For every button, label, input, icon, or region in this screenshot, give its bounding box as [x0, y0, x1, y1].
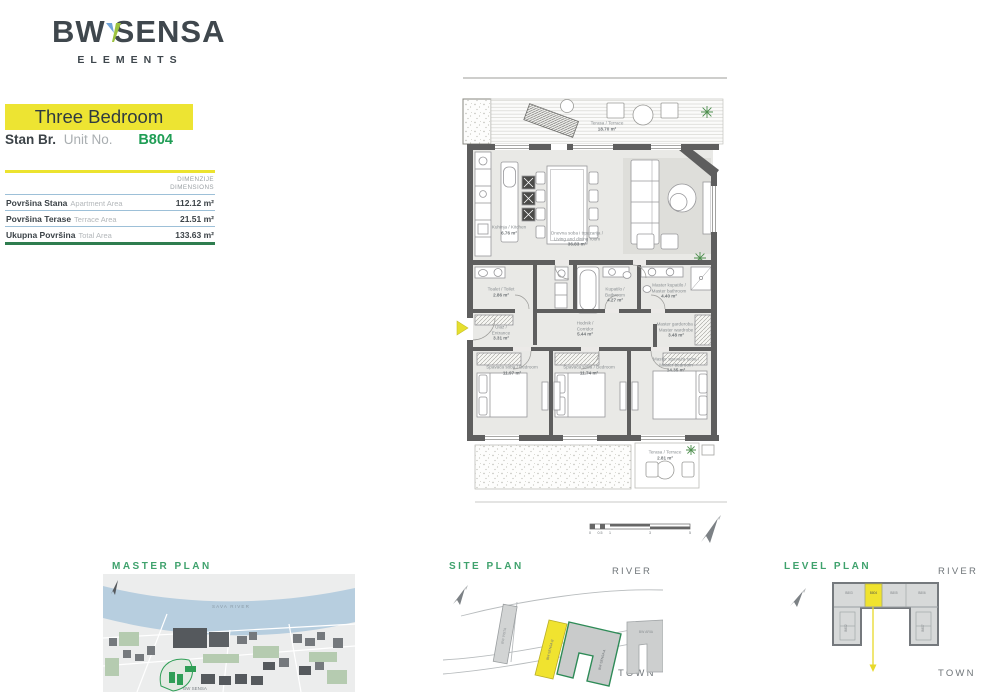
kitchen-sink	[479, 157, 487, 165]
dresser	[632, 382, 638, 410]
svg-text:B805: B805	[890, 591, 898, 595]
window	[485, 435, 519, 441]
project-label: BW SENSA	[183, 686, 207, 691]
site-building-right	[627, 620, 663, 674]
wc	[623, 272, 631, 279]
room-label-toilet: Toalet / Toilet2.86 m²	[486, 286, 516, 297]
row-value: 112.12 m²	[176, 198, 214, 208]
side-table	[561, 100, 574, 113]
room-label-master-wardrobe: Master garderoba / Master wardrobe3.48 m…	[655, 321, 697, 338]
terrace-door-gap	[551, 144, 567, 150]
floor-plan: 0 0.5 1 3 5 Terasa / Terrace18.70 m² Kuh…	[455, 66, 737, 548]
table-header-sr: DIMENZIJE	[6, 176, 214, 184]
opening	[581, 347, 599, 351]
site-plan-map: BW VISTA BW SENSA B BW SENSA A BW ARIA	[443, 560, 663, 692]
row-name-sr: Površina Stana	[6, 198, 67, 208]
master-plan-map: SAVA RIVER BW SENSA	[103, 574, 355, 692]
row-name-sr: Ukupna Površina	[6, 230, 75, 240]
opening	[605, 309, 619, 313]
kitchen-counter	[475, 152, 491, 256]
scale-bar: 0 0.5 1 3 5	[589, 524, 691, 535]
sink	[494, 269, 502, 277]
svg-text:B807: B807	[921, 624, 925, 632]
terrace-chair	[646, 462, 658, 477]
table-bottom-rule	[5, 242, 215, 245]
brand-logo: BWSENSA ELEMENTS	[52, 16, 202, 66]
wc	[479, 270, 488, 277]
svg-text:0.5: 0.5	[598, 531, 603, 535]
table-row: Ukupna Površina Total Area 133.63 m²	[5, 226, 215, 242]
terrace-table	[656, 461, 674, 479]
master-vanity	[641, 267, 683, 277]
table-row: Površina Terase Terrace Area 21.51 m²	[5, 210, 215, 226]
table-header-en: DIMENSIONS	[6, 184, 214, 192]
ground-area	[475, 445, 631, 489]
opening	[633, 260, 646, 265]
floor-plan-drawing: 0 0.5 1 3 5	[455, 66, 737, 548]
room-label-corridor: Hodnik / Corridor5.44 m²	[568, 320, 602, 337]
window	[641, 435, 685, 441]
dining-chair	[536, 172, 545, 184]
ac-unit	[702, 445, 714, 455]
unit-label-en: Unit No.	[64, 132, 113, 147]
opening	[513, 347, 531, 351]
tv-unit	[703, 182, 711, 234]
svg-text:B802: B802	[844, 624, 848, 632]
north-arrow-icon	[701, 515, 721, 543]
bath-shelf	[555, 283, 567, 308]
logo-wordmark: BWSENSA	[52, 16, 202, 47]
room-label-bedroom2: Spavaća soba / Bedroom11.74 m²	[560, 364, 618, 375]
armchair	[637, 234, 654, 249]
svg-text:B803: B803	[845, 591, 853, 595]
north-arrow-icon	[790, 588, 806, 607]
room-label-master-bath: Master kupatilo / Master bathroom4.40 m²	[650, 282, 688, 299]
site-building-sensa-a	[557, 622, 621, 686]
row-name-sr: Površina Terase	[6, 214, 71, 224]
logo-bw: BW	[52, 14, 106, 49]
room-label-entrance: Ulaz / Entrance3.31 m²	[486, 324, 516, 341]
window	[711, 186, 717, 232]
window	[651, 144, 681, 150]
unit-number-row: Stan Br. Unit No. B804	[5, 132, 173, 148]
opening	[651, 309, 665, 313]
level-unit-highlight	[865, 584, 882, 607]
dresser	[620, 382, 626, 410]
terrace-table	[633, 105, 653, 125]
table-header: DIMENZIJE DIMENSIONS	[5, 173, 215, 194]
armchair	[661, 234, 678, 249]
room-label-bedroom1: Spavaća soba / Bedroom11.97 m²	[483, 364, 541, 375]
row-value: 21.51 m²	[180, 214, 214, 224]
svg-text:B806: B806	[918, 591, 926, 595]
wardrobe	[477, 353, 521, 365]
master-bed	[653, 371, 707, 419]
master-wardrobe-closet	[695, 315, 711, 345]
wardrobe	[555, 353, 599, 365]
bed	[477, 373, 527, 417]
river-label: SAVA RIVER	[212, 604, 250, 609]
row-value: 133.63 m²	[175, 230, 214, 240]
bed	[555, 373, 605, 417]
room-label-master-bedroom: Master spavaća soba / Master bedroom14.3…	[650, 356, 702, 373]
logo-wedge-icon	[106, 22, 121, 43]
master-plan-title: MASTER PLAN	[112, 561, 212, 572]
north-arrow-icon	[453, 585, 468, 605]
room-label-terrace-small: Terasa / Terrace2.81 m²	[645, 449, 685, 460]
logo-elements: ELEMENTS	[52, 54, 202, 66]
row-name-en: Total Area	[78, 231, 111, 240]
svg-text:5: 5	[689, 531, 691, 535]
entrance-arrow-icon	[457, 321, 468, 335]
dimensions-table: DIMENZIJE DIMENSIONS Površina Stana Apar…	[5, 170, 215, 245]
unit-label-sr: Stan Br.	[5, 132, 56, 147]
plant-icon	[701, 106, 713, 118]
window	[573, 144, 613, 150]
window	[495, 144, 529, 150]
opening	[651, 347, 669, 351]
level-indicator-arrow	[870, 665, 877, 673]
plant-icon	[686, 445, 696, 455]
logo-sensa: SENSA	[114, 14, 226, 49]
table-row: Površina Stana Apartment Area 112.12 m²	[5, 194, 215, 210]
svg-text:1: 1	[609, 531, 611, 535]
entrance-door-gap	[467, 318, 473, 340]
stove	[522, 176, 535, 221]
row-name-en: Apartment Area	[70, 199, 122, 208]
svg-text:0: 0	[589, 531, 591, 535]
row-name-en: Terrace Area	[74, 215, 117, 224]
terrace-chair	[607, 103, 624, 118]
window	[563, 435, 597, 441]
unit-type-title: Three Bedroom	[5, 104, 193, 130]
room-label-terrace-main: Terasa / Terrace18.70 m²	[579, 120, 635, 131]
dresser	[542, 382, 548, 410]
level-plan-map: B803 B804 B805 B806 B802 B807	[778, 560, 993, 692]
opening	[555, 260, 569, 265]
room-label-bathroom: Kupatilo / Bathroom4.27 m²	[598, 286, 632, 303]
svg-text:BW ARIA: BW ARIA	[639, 630, 654, 634]
svg-text:3: 3	[649, 531, 651, 535]
terrace-chair	[661, 103, 678, 118]
room-label-kitchen: Kuhinja / Kitchen6.76 m²	[491, 224, 527, 235]
dresser	[554, 382, 560, 410]
level-unit-b804: B804	[870, 591, 878, 595]
terrace-chair	[682, 462, 694, 477]
room-label-living: Dnevna soba i trpezarija / Living and di…	[546, 230, 608, 247]
unit-number: B804	[138, 132, 173, 148]
